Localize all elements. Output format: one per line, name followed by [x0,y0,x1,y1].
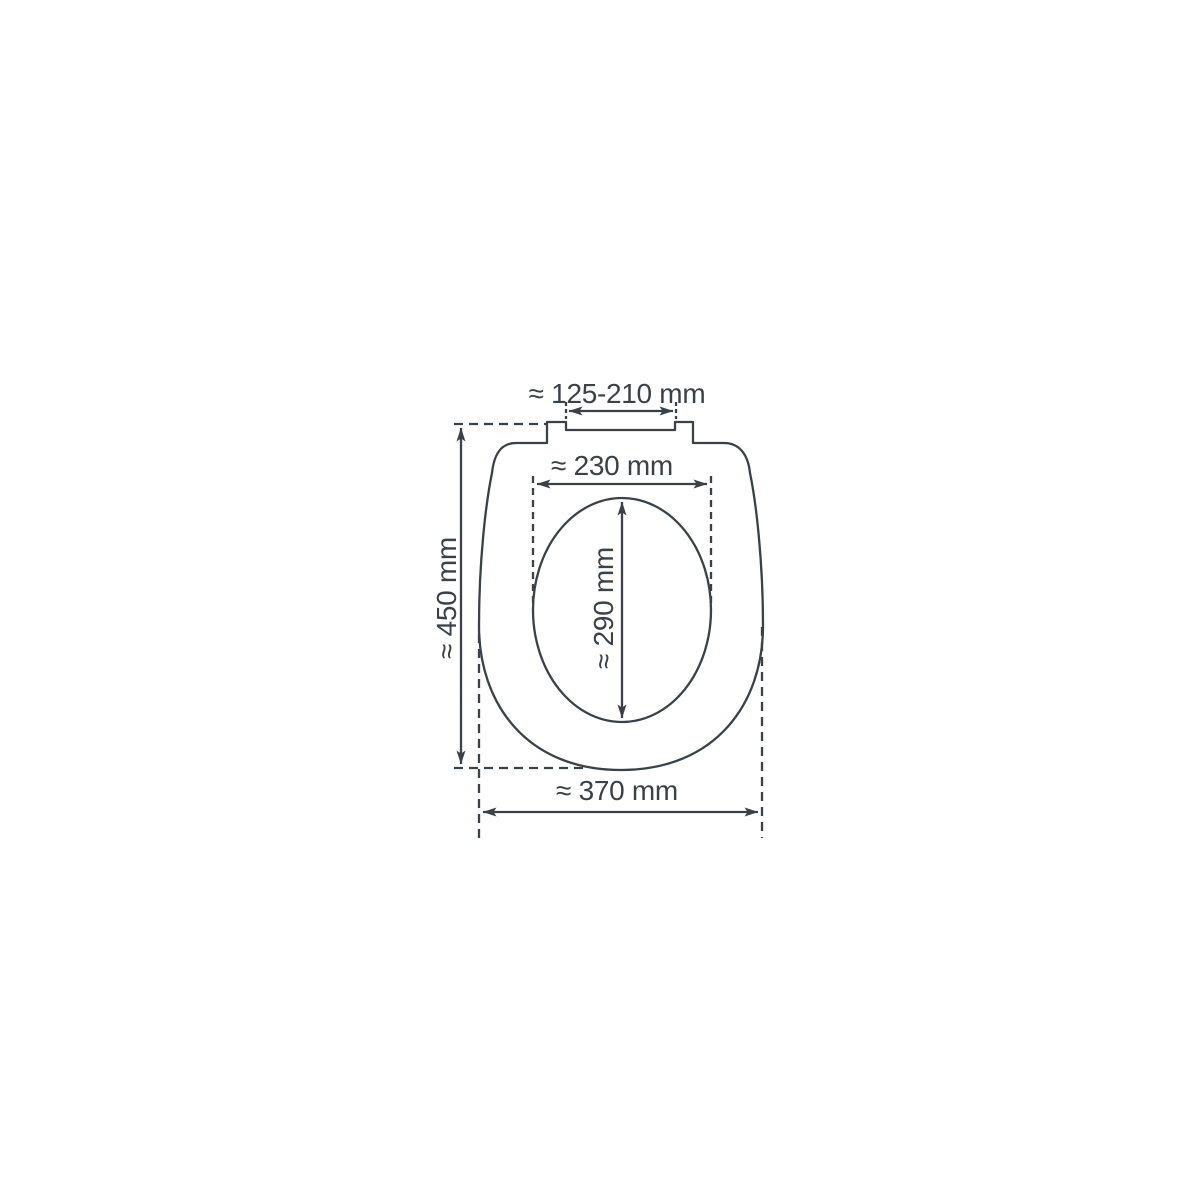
total-length-label: ≈ 450 mm [431,537,462,659]
toilet-seat-dimension-diagram: ≈ 125-210 mm ≈ 230 mm ≈ 290 mm ≈ 450 mm … [0,0,1200,1200]
total-width-label: ≈ 370 mm [556,775,678,806]
hinge-spacing-label: ≈ 125-210 mm [529,378,706,409]
inner-length-label: ≈ 290 mm [588,547,619,669]
diagram-canvas: ≈ 125-210 mm ≈ 230 mm ≈ 290 mm ≈ 450 mm … [0,0,1200,1200]
inner-width-label: ≈ 230 mm [551,450,673,481]
